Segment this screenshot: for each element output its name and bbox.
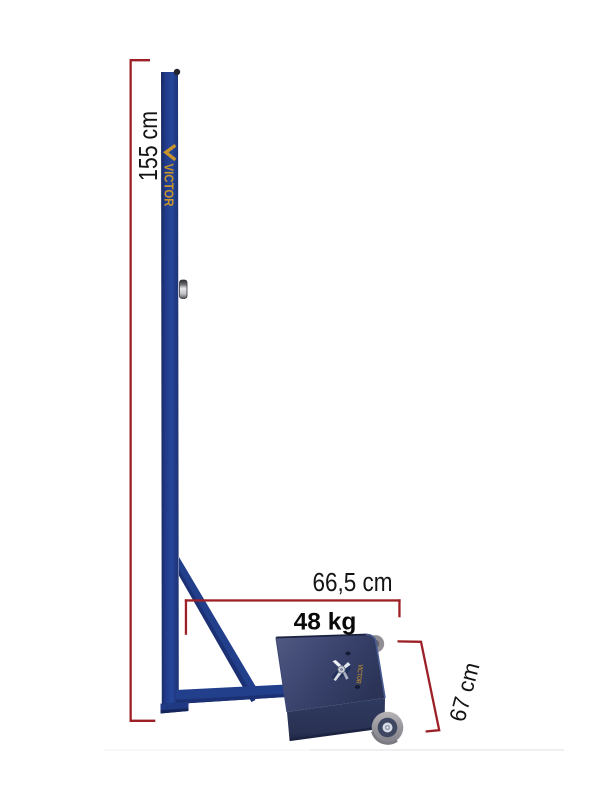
svg-text:48 kg: 48 kg <box>294 609 357 636</box>
svg-text:VICTOR: VICTOR <box>162 164 176 207</box>
svg-text:155 cm: 155 cm <box>133 111 163 181</box>
svg-text:66,5 cm: 66,5 cm <box>313 569 393 597</box>
